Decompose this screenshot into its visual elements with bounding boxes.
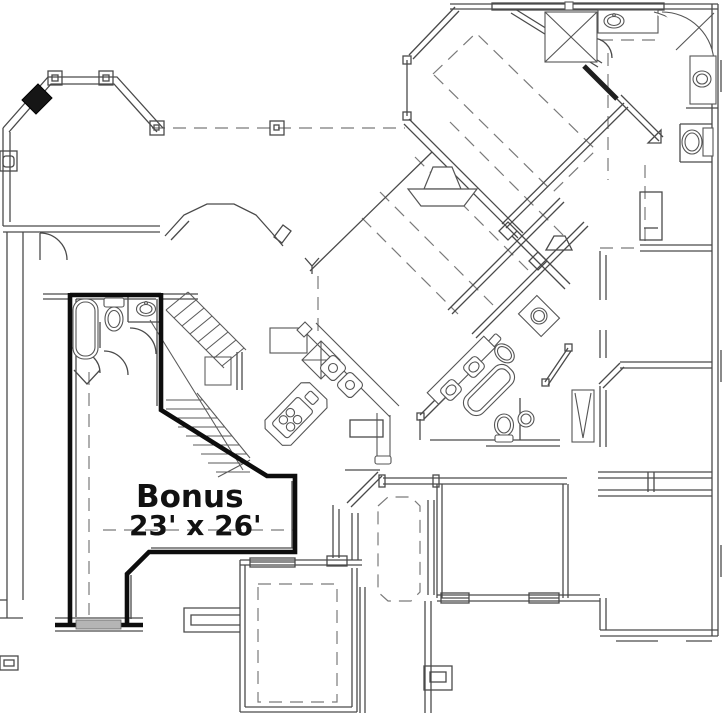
floor-plan-page: Bonus 23' x 26' [0,0,725,716]
floor-plan-drawing: Bonus 23' x 26' [0,0,725,716]
dashed-ceiling-lines [89,33,662,702]
master-bathroom [545,2,716,156]
fireplace-icon [22,84,477,206]
hall-bathroom [484,295,560,367]
toilet-icon [104,298,124,307]
stairs-icon [150,292,250,477]
porch-column [76,620,121,629]
cased-opening [584,66,617,99]
cooktop-island-icon [261,378,331,449]
bonus-bathroom [73,298,156,359]
toilet-icon [703,128,713,156]
bonus-room-dimensions: 23' x 26' [129,509,262,542]
walls-layer [0,3,721,713]
kitchen-area [261,322,399,464]
